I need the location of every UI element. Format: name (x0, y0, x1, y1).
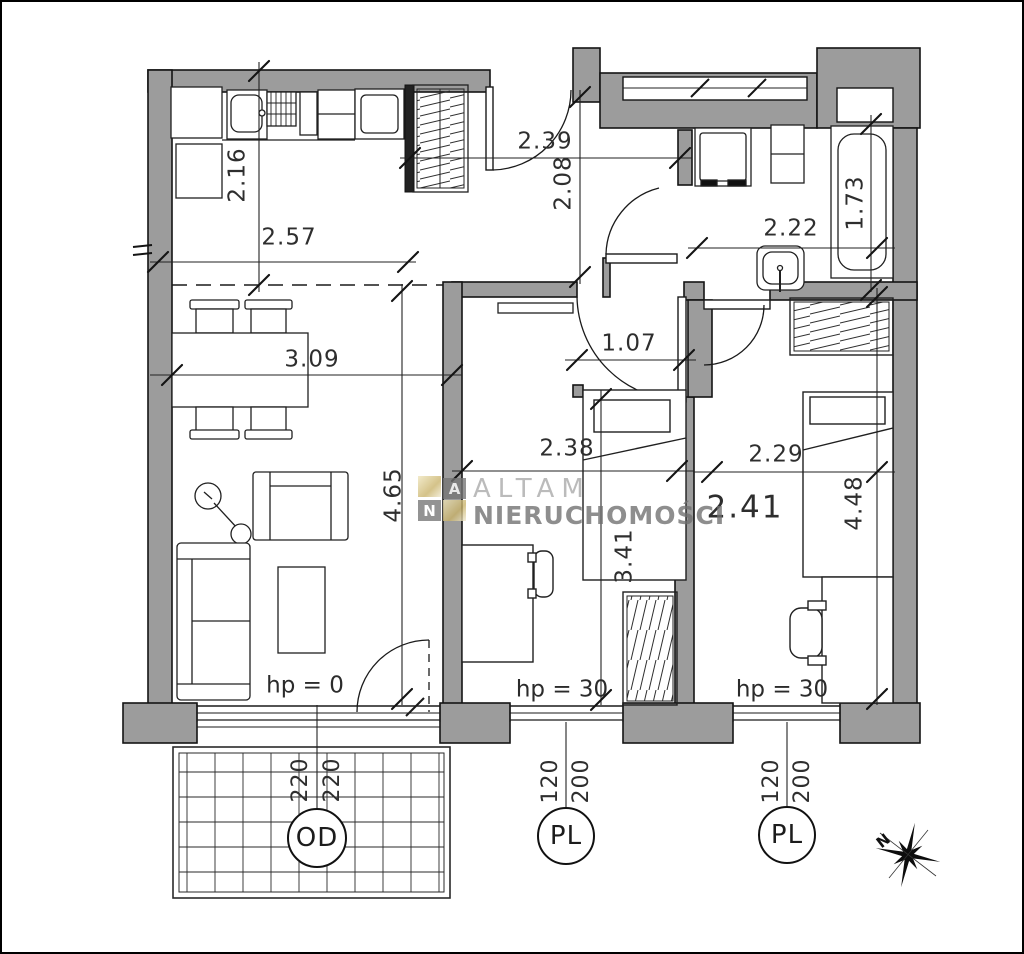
mid-desk (462, 545, 533, 662)
armchair (253, 472, 348, 540)
watermark-brand-bottom: NIERUCHOMOŚCI (473, 503, 725, 528)
hall-closet (405, 85, 468, 192)
right-desk (822, 577, 893, 703)
level-label-right: hp = 30 (736, 679, 828, 702)
logo-letter-n: N (418, 500, 441, 521)
dim-label-kitchen-height: 2.16 (227, 147, 250, 202)
right-desk-chair (790, 608, 822, 658)
logo-gold-square (443, 500, 466, 521)
dim-label-mid-width: 2.38 (539, 438, 594, 461)
right-wardrobe (794, 302, 889, 351)
window-mid-size-w: 120 (540, 759, 562, 804)
dim-label-hall-width: 2.39 (517, 131, 572, 154)
mid-room-door-leaf (678, 297, 686, 402)
dim-label-bath-height: 1.73 (845, 175, 868, 230)
dim-label-mid-door: 1.07 (601, 333, 656, 356)
watermark-brand-top: ALTAM (473, 476, 725, 502)
dim-label-living-height: 4.65 (383, 467, 406, 522)
dim-label-hall-height: 2.08 (553, 155, 576, 210)
kitchen-sink (231, 95, 262, 132)
right-bed-pillow (810, 397, 885, 424)
coffee-table (278, 567, 325, 653)
bathroom-door-leaf (606, 254, 677, 263)
logo-letter-a: A (443, 478, 466, 499)
hall-shelf (498, 303, 573, 313)
dim-label-kitchen-width: 2.57 (261, 227, 316, 250)
watermark-logo-icon: A N (418, 476, 467, 522)
balcony-door-tag: OD (296, 825, 339, 851)
balcony-door-size-w: 220 (290, 758, 312, 803)
balcony-door-size-h: 220 (322, 758, 344, 803)
mid-desk-chair (534, 551, 553, 597)
window-right-size-w: 120 (761, 759, 783, 804)
window-mid-tag: PL (550, 823, 582, 849)
watermark: A N ALTAM NIERUCHOMOŚCI (418, 476, 725, 528)
dim-label-bath-width: 2.22 (763, 218, 818, 241)
mid-wardrobe (627, 596, 673, 701)
floor-plan-page: 2.16 2.57 2.39 2.08 2.22 1.73 3.09 4.65 … (0, 0, 1024, 954)
logo-gold-square (418, 476, 441, 497)
kitchen-fixtures (171, 87, 404, 198)
window-mid-size-h: 200 (571, 759, 593, 804)
dim-label-living-width: 3.09 (284, 349, 339, 372)
dim-label-right-width: 2.29 (748, 444, 803, 467)
window-right-tag: PL (771, 822, 803, 848)
dim-label-mid-height: 3.41 (614, 528, 637, 583)
mid-bed-pillow (594, 400, 670, 432)
level-label-mid: hp = 30 (516, 679, 608, 702)
window-right-size-h: 200 (792, 759, 814, 804)
right-room-door-leaf (704, 300, 770, 309)
dim-label-right-height: 4.48 (844, 475, 867, 530)
level-label-living: hp = 0 (266, 675, 344, 698)
